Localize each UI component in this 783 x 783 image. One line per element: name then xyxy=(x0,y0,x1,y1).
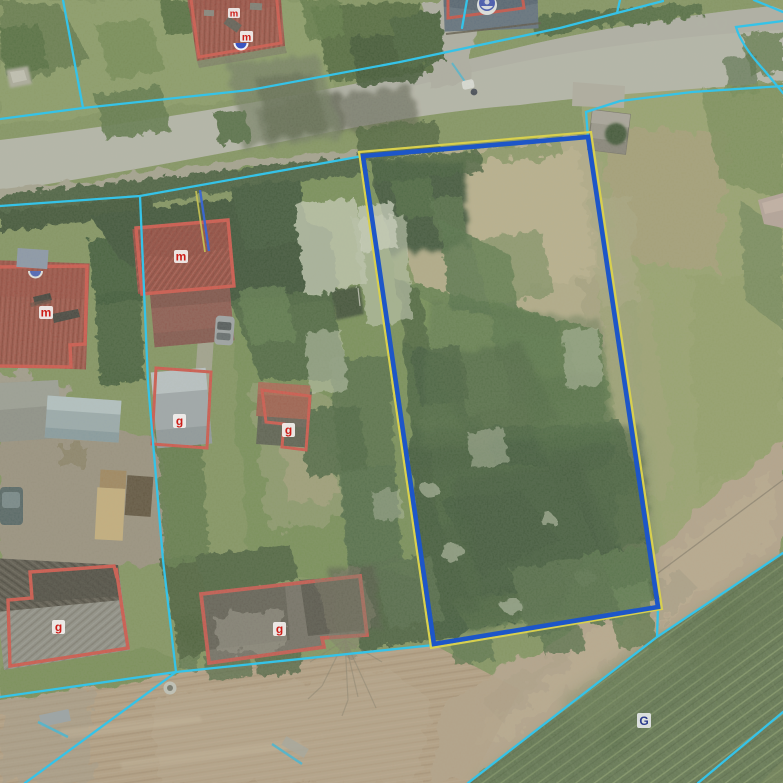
svg-text:g: g xyxy=(285,423,292,437)
svg-text:m: m xyxy=(230,9,238,20)
svg-text:g: g xyxy=(276,622,283,636)
svg-text:g: g xyxy=(55,620,62,634)
svg-text:m: m xyxy=(176,250,187,264)
svg-text:G: G xyxy=(639,714,648,728)
svg-text:m: m xyxy=(242,32,251,44)
svg-text:m: m xyxy=(41,306,52,320)
svg-text:g: g xyxy=(176,414,183,428)
